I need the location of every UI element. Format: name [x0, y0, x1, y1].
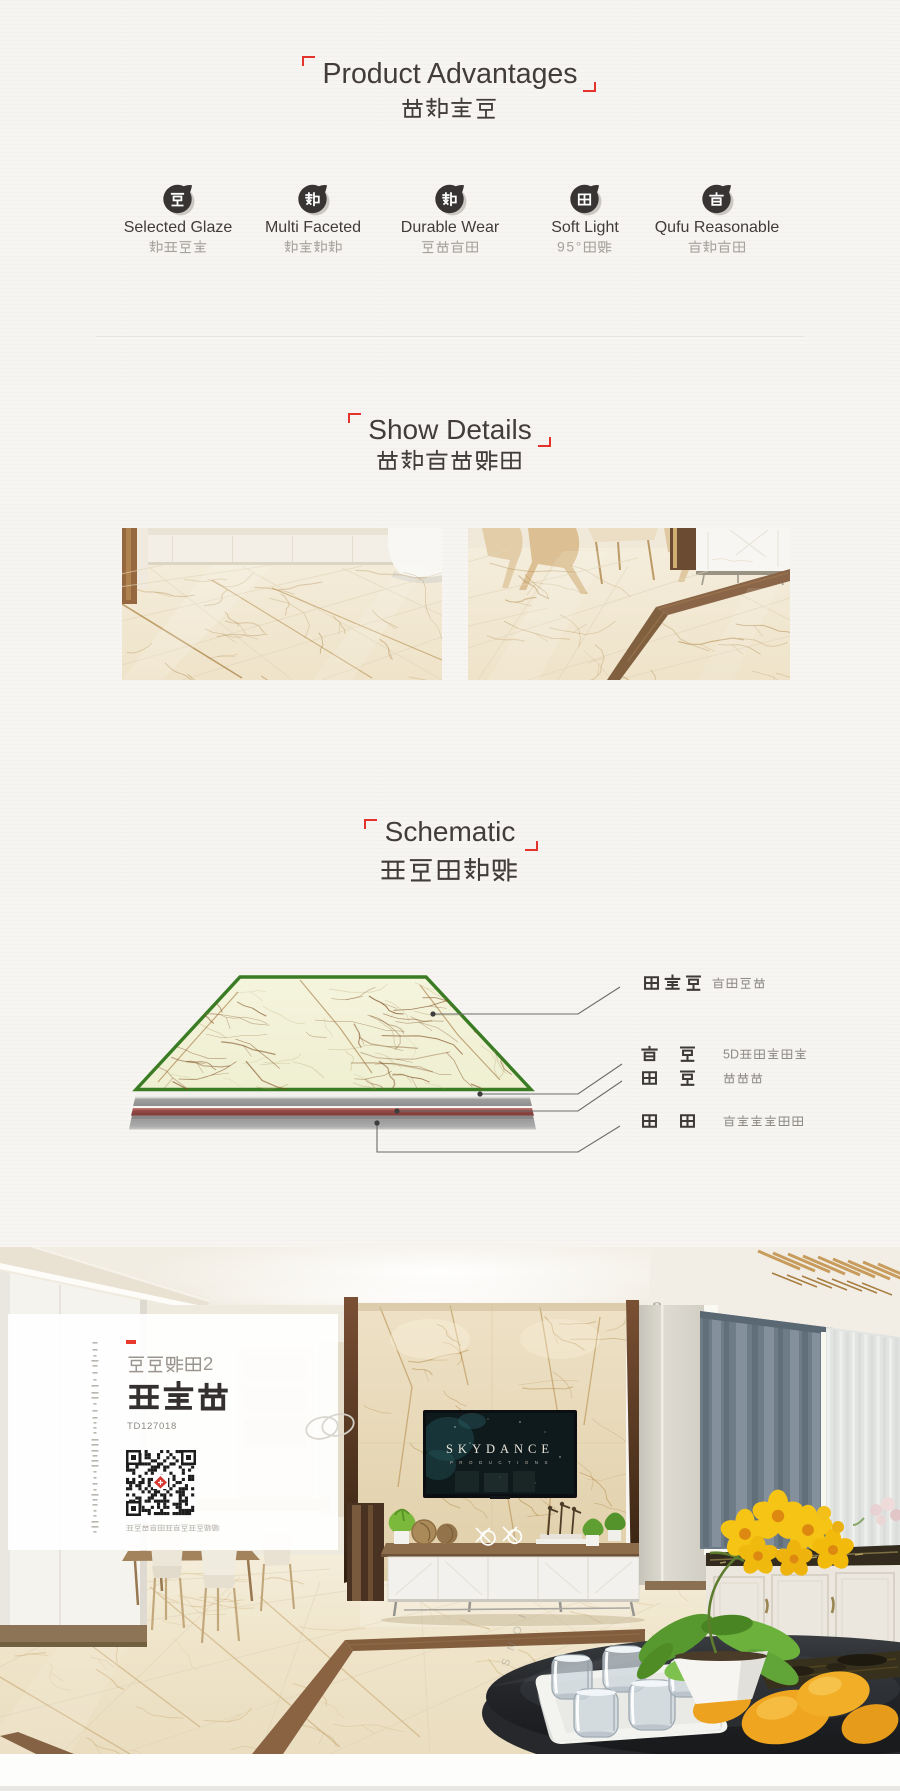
svg-text:5D: 5D — [723, 1048, 739, 1062]
svg-text:°: ° — [576, 240, 582, 255]
svg-text:SKYDANCE: SKYDANCE — [446, 1442, 554, 1456]
svg-text:9: 9 — [557, 240, 565, 255]
svg-text:5: 5 — [566, 240, 574, 255]
svg-text:2: 2 — [203, 1355, 213, 1374]
svg-text:P R O D U C T I O N S: P R O D U C T I O N S — [450, 1460, 550, 1465]
